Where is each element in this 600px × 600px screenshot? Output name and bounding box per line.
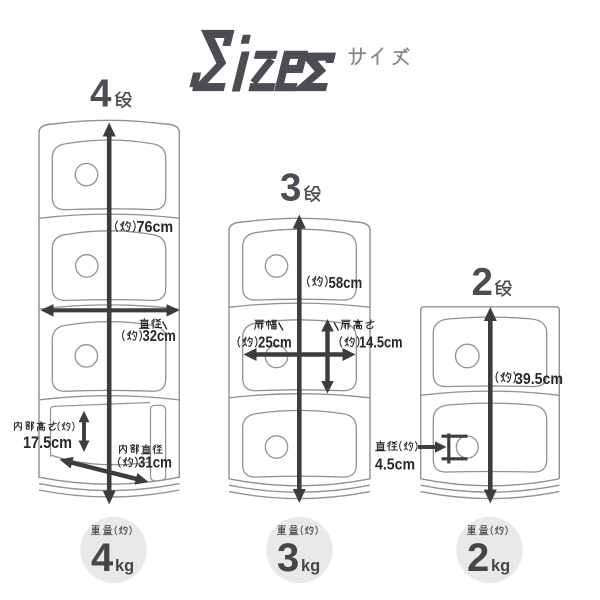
svg-text:31cm: 31cm — [138, 455, 172, 472]
svg-text:3: 3 — [277, 536, 299, 580]
svg-text:kg: kg — [115, 557, 134, 575]
svg-text:3: 3 — [280, 167, 301, 210]
svg-text:2: 2 — [472, 261, 493, 304]
svg-text:4: 4 — [91, 536, 114, 580]
svg-text:76cm: 76cm — [137, 219, 174, 236]
svg-text:14.5cm: 14.5cm — [359, 334, 403, 351]
svg-text:kg: kg — [491, 557, 510, 575]
svg-text:25cm: 25cm — [258, 334, 292, 351]
svg-text:2: 2 — [467, 536, 489, 580]
svg-text:17.5cm: 17.5cm — [23, 433, 72, 452]
svg-text:58cm: 58cm — [329, 275, 363, 292]
svg-text:kg: kg — [301, 557, 320, 575]
svg-text:4.5cm: 4.5cm — [375, 456, 415, 473]
svg-text:39.5cm: 39.5cm — [515, 371, 563, 388]
svg-text:32cm: 32cm — [143, 328, 176, 345]
svg-text:4: 4 — [90, 73, 112, 116]
